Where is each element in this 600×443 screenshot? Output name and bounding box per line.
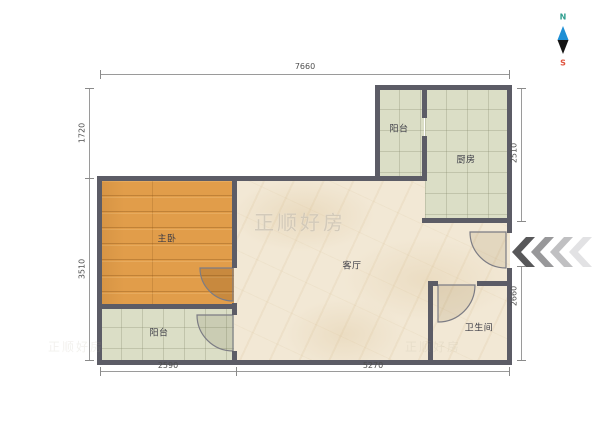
wall (232, 303, 237, 315)
wall (97, 304, 237, 309)
wall (422, 85, 427, 118)
room-label-master-bedroom: 主卧 (157, 232, 176, 245)
room-label-living-room: 客厅 (342, 259, 361, 272)
dimension-left-lower-label: 3510 (78, 259, 87, 279)
entrance-arrow-icon (510, 235, 600, 269)
room-label-balcony-bottom: 阳台 (149, 326, 168, 339)
compass-arrow-icon (552, 24, 574, 56)
dimension-right-lower-label: 2660 (510, 286, 519, 306)
dimension-bottom-left-label: 2590 (100, 361, 236, 370)
compass-south-label: S (560, 59, 566, 68)
watermark-faint: 正顺好房 (405, 338, 461, 355)
floorplan-canvas: 阳台 厨房 主卧 客厅 阳台 卫生间 正顺好房 正顺好房 正顺好房 N S 76… (0, 0, 600, 443)
dimension-right-upper-label: 2510 (510, 143, 519, 163)
dimension-left-upper-label: 1720 (78, 123, 87, 143)
wall (422, 218, 512, 223)
compass-north-label: N (560, 13, 567, 22)
dimension-top-label: 7660 (100, 62, 510, 71)
room-label-balcony-top: 阳台 (389, 122, 408, 135)
wall (422, 136, 427, 181)
wall (375, 85, 380, 181)
dimension-bottom-right-label: 5270 (236, 361, 510, 370)
watermark: 正顺好房 (254, 207, 346, 236)
wall (97, 176, 102, 365)
watermark-faint: 正顺好房 (48, 338, 104, 355)
wall (375, 85, 512, 90)
room-label-kitchen: 厨房 (456, 153, 475, 166)
room-label-bathroom: 卫生间 (465, 321, 494, 334)
wall (232, 176, 237, 268)
wall (507, 268, 512, 365)
